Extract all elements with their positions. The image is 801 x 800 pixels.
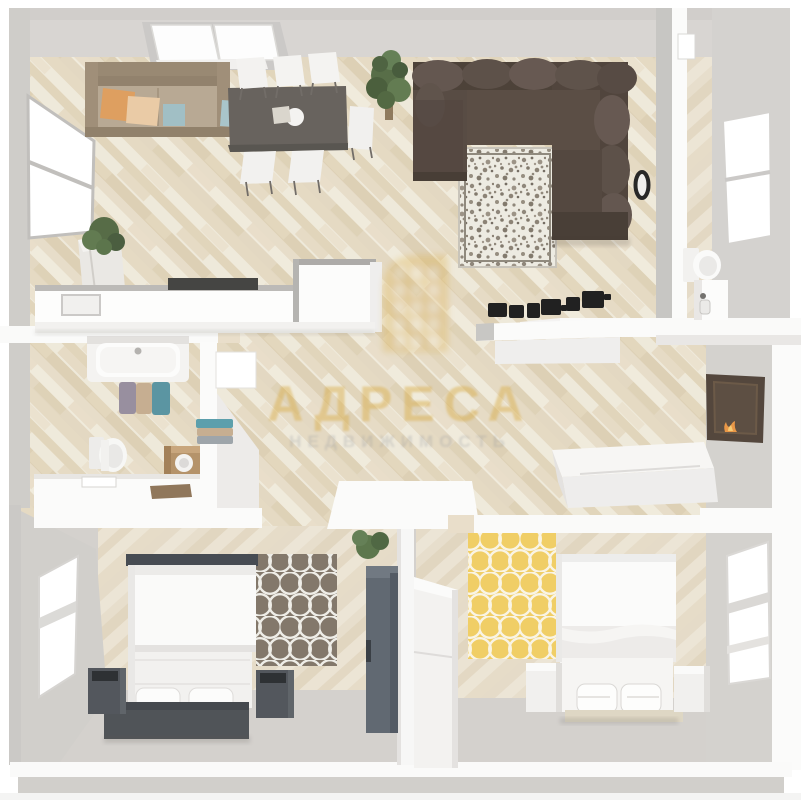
svg-text:АДРЕСА: АДРЕСА bbox=[267, 376, 532, 432]
svg-text:НЕДВИЖИМОСТЬ: НЕДВИЖИМОСТЬ bbox=[289, 432, 511, 451]
